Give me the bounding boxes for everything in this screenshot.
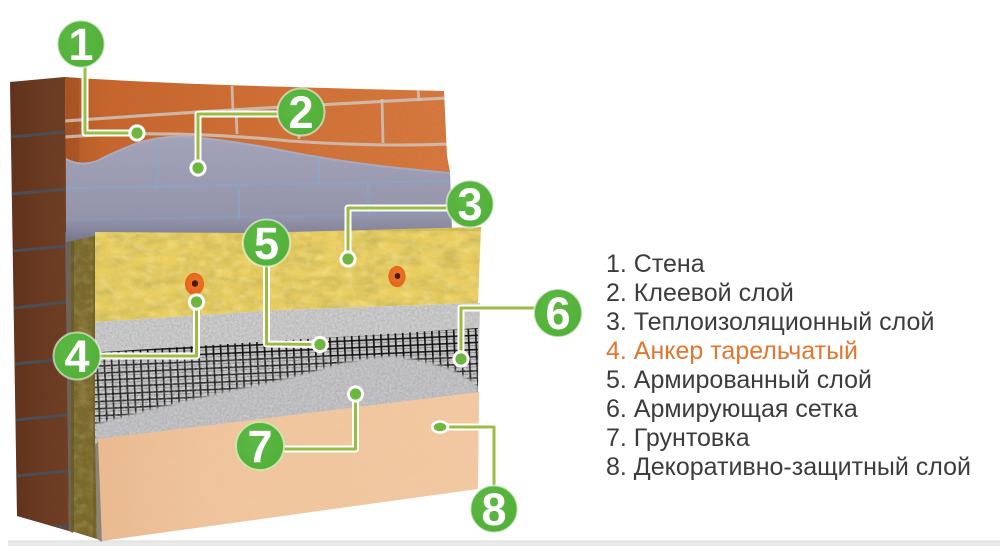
svg-text:7: 7 xyxy=(247,421,272,472)
svg-text:1. Стена: 1. Стена xyxy=(606,250,705,278)
svg-text:6. Армирующая сетка: 6. Армирующая сетка xyxy=(606,395,858,423)
svg-text:3. Теплоизоляционный слой: 3. Теплоизоляционный слой xyxy=(606,308,934,336)
svg-text:8. Декоративно-защитный слой: 8. Декоративно-защитный слой xyxy=(606,453,971,481)
svg-text:2. Клеевой слой: 2. Клеевой слой xyxy=(606,279,794,307)
svg-text:5. Армированный слой: 5. Армированный слой xyxy=(606,366,872,394)
svg-text:4: 4 xyxy=(64,331,89,382)
svg-text:4. Анкер тарельчатый: 4. Анкер тарельчатый xyxy=(606,337,858,365)
svg-text:6: 6 xyxy=(545,288,570,339)
svg-text:3: 3 xyxy=(457,179,482,230)
svg-text:5: 5 xyxy=(254,218,279,269)
svg-text:2: 2 xyxy=(288,87,313,138)
svg-text:8: 8 xyxy=(481,484,506,535)
svg-text:7. Грунтовка: 7. Грунтовка xyxy=(606,424,750,452)
svg-text:1: 1 xyxy=(68,19,93,70)
